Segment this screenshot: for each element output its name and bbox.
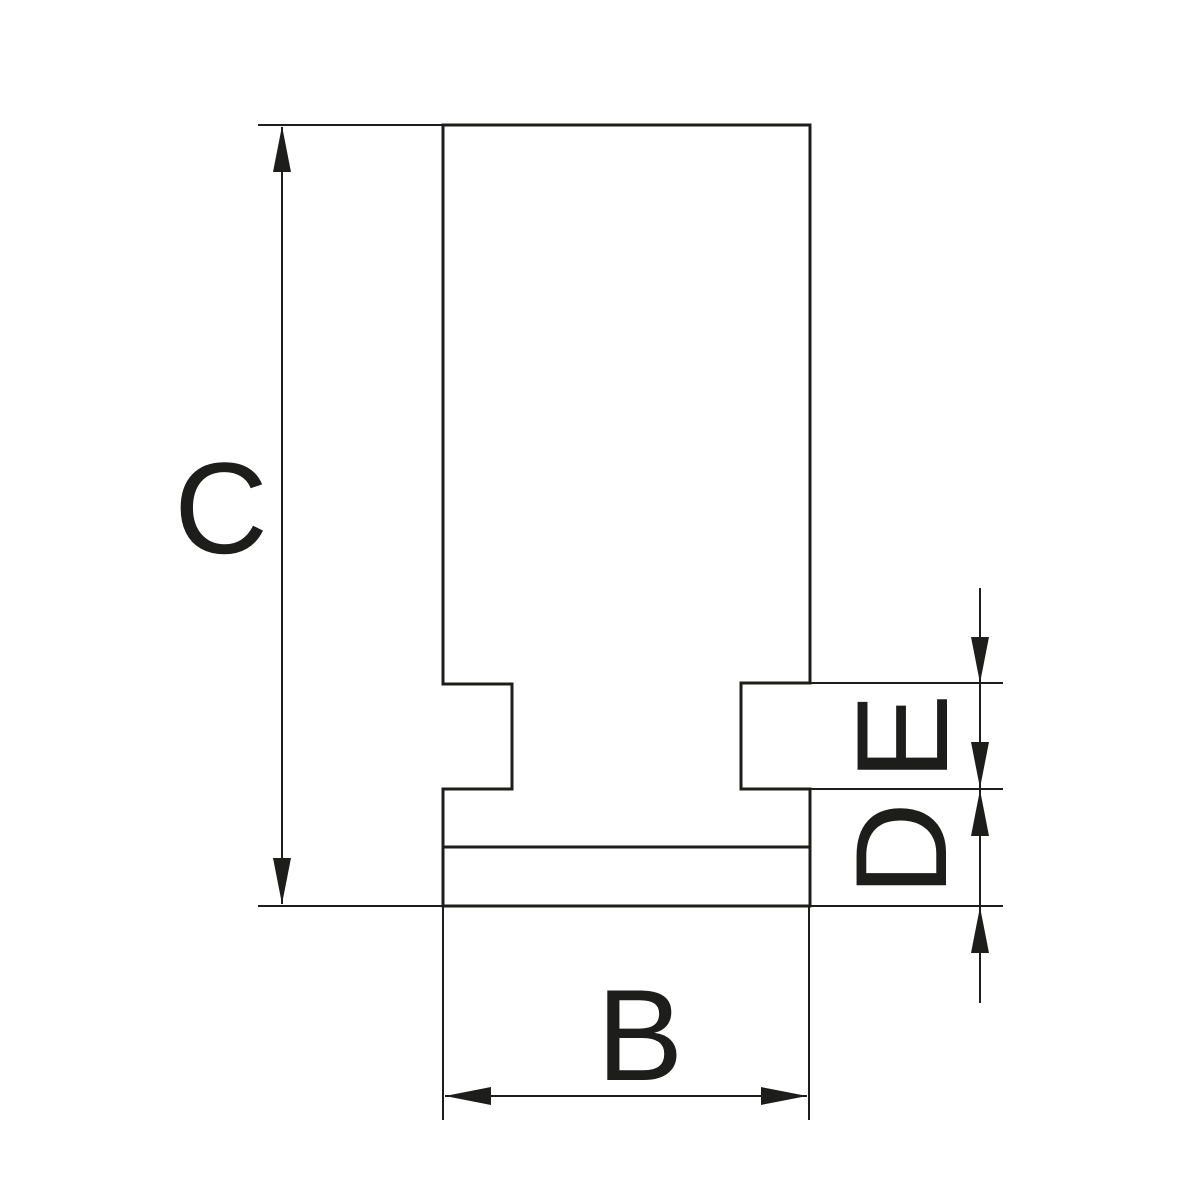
dimension-e-arrow-top	[971, 637, 989, 683]
dimension-c: C	[174, 126, 291, 904]
dimension-c-label: C	[174, 435, 268, 581]
dimension-b-label: B	[597, 962, 684, 1108]
dimension-e-label: E	[829, 694, 975, 781]
dimension-b: B	[445, 962, 807, 1108]
drawing-canvas: C B E D	[0, 0, 1200, 1200]
dimension-b-arrow-left	[445, 1087, 491, 1105]
part-outline	[443, 125, 810, 906]
dimension-b-arrow-right	[761, 1087, 807, 1105]
dimension-c-arrow-top	[273, 126, 291, 172]
dimension-c-arrow-bottom	[273, 858, 291, 904]
dimension-d-arrow-bottom	[971, 907, 989, 953]
dimension-d-label: D	[828, 802, 974, 896]
technical-drawing: C B E D	[0, 0, 1200, 1200]
